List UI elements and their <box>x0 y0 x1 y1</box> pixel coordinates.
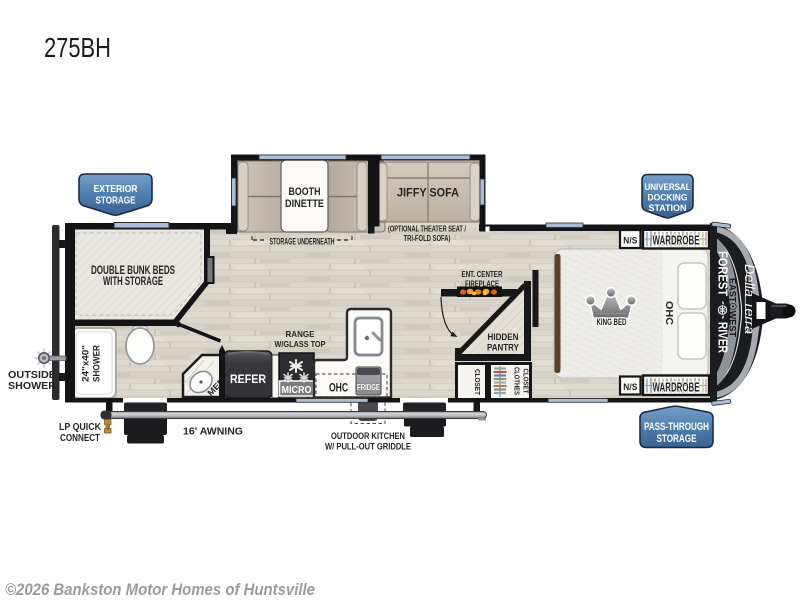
svg-text:STORAGE: STORAGE <box>657 433 697 445</box>
svg-text:WITH STORAGE: WITH STORAGE <box>103 276 163 288</box>
svg-text:SHOWER: SHOWER <box>8 381 57 392</box>
svg-text:24"x40": 24"x40" <box>81 345 91 382</box>
svg-text:CLOSET: CLOSET <box>473 369 482 395</box>
svg-text:MICRO: MICRO <box>282 384 312 396</box>
svg-text:16' AWNING: 16' AWNING <box>183 426 243 438</box>
svg-text:PANTRY: PANTRY <box>487 343 519 353</box>
svg-text:OUTSIDE: OUTSIDE <box>8 370 56 381</box>
svg-text:CONNECT: CONNECT <box>60 432 100 444</box>
svg-text:CLOSET: CLOSET <box>522 369 529 395</box>
svg-text:TRI-FOLD SOFA): TRI-FOLD SOFA) <box>404 234 451 243</box>
svg-text:REFER: REFER <box>230 374 267 386</box>
svg-text:CLOTHES: CLOTHES <box>513 367 520 395</box>
svg-text:DOCKING: DOCKING <box>648 193 688 204</box>
svg-text:PASS-THROUGH: PASS-THROUGH <box>644 421 709 433</box>
svg-text:JIFFY SOFA: JIFFY SOFA <box>397 186 459 200</box>
svg-text:W/ PULL-OUT GRIDDLE: W/ PULL-OUT GRIDDLE <box>325 442 411 453</box>
svg-text:UNIVERSAL: UNIVERSAL <box>645 182 691 193</box>
svg-text:(OPTIONAL THEATER SEAT /: (OPTIONAL THEATER SEAT / <box>388 225 467 234</box>
svg-text:EAST☉WEST: EAST☉WEST <box>727 278 738 337</box>
svg-text:RANGE: RANGE <box>286 329 315 339</box>
svg-text:N/S: N/S <box>623 236 637 247</box>
svg-text:STATION: STATION <box>649 203 687 214</box>
svg-text:FIREPLACE: FIREPLACE <box>465 279 499 289</box>
svg-text:WARDROBE: WARDROBE <box>653 234 700 248</box>
svg-text:FRIDGE: FRIDGE <box>357 383 380 392</box>
svg-text:SHOWER: SHOWER <box>92 345 102 382</box>
svg-text:HIDDEN: HIDDEN <box>488 332 519 342</box>
svg-text:BOOTH: BOOTH <box>289 186 321 198</box>
svg-text:N/S: N/S <box>623 382 637 393</box>
svg-text:STORAGE UNDERNEATH: STORAGE UNDERNEATH <box>270 237 335 247</box>
svg-text:OHC: OHC <box>329 381 348 395</box>
svg-text:EXTERIOR: EXTERIOR <box>94 183 138 195</box>
svg-text:©2026 Bankston Motor Homes of: ©2026 Bankston Motor Homes of Huntsville <box>5 580 315 599</box>
svg-text:275BH: 275BH <box>44 32 111 63</box>
svg-text:KING BED: KING BED <box>597 317 627 327</box>
svg-text:STORAGE: STORAGE <box>96 195 136 207</box>
svg-text:OHC: OHC <box>663 301 674 325</box>
svg-text:DINETTE: DINETTE <box>285 198 324 210</box>
svg-text:OUTDOOR KITCHEN: OUTDOOR KITCHEN <box>331 431 405 442</box>
svg-text:W/GLASS TOP: W/GLASS TOP <box>275 339 326 349</box>
svg-text:ENT. CENTER: ENT. CENTER <box>462 269 503 279</box>
svg-text:WARDROBE: WARDROBE <box>653 381 700 395</box>
